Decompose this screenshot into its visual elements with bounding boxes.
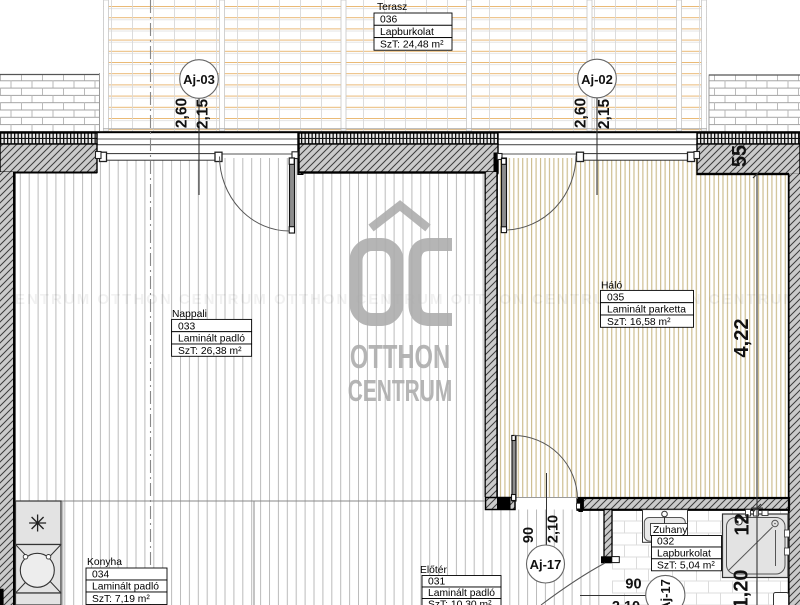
svg-text:032: 032 [657, 537, 674, 548]
svg-text:034: 034 [92, 570, 109, 581]
svg-text:2,60: 2,60 [573, 98, 590, 128]
svg-text:2,60: 2,60 [174, 98, 191, 128]
svg-text:Háló: Háló [601, 281, 622, 292]
svg-text:SzT: 26,38 m²: SzT: 26,38 m² [178, 346, 242, 357]
svg-text:Laminált padló: Laminált padló [178, 334, 245, 345]
svg-text:OTTHON: OTTHON [350, 339, 450, 376]
svg-text:SzT: 24,48 m²: SzT: 24,48 m² [380, 39, 444, 50]
svg-text:4,22: 4,22 [731, 319, 753, 358]
svg-text:2,15: 2,15 [596, 99, 613, 130]
svg-text:90: 90 [625, 577, 641, 593]
svg-text:035: 035 [607, 292, 624, 303]
svg-text:2,15: 2,15 [195, 99, 212, 130]
svg-text:Zuhany: Zuhany [653, 525, 688, 536]
svg-text:Konyha: Konyha [87, 557, 122, 568]
svg-text:Aj-02: Aj-02 [581, 72, 613, 87]
svg-text:036: 036 [380, 15, 397, 26]
svg-text:Aj-17: Aj-17 [530, 557, 562, 572]
svg-text:SzT: 16,58 m²: SzT: 16,58 m² [607, 317, 671, 328]
svg-text:Lapburkolat: Lapburkolat [380, 27, 434, 38]
svg-text:SzT: 7,19 m²: SzT: 7,19 m² [92, 594, 150, 605]
svg-text:1,20: 1,20 [731, 570, 753, 605]
svg-text:031: 031 [428, 577, 445, 588]
svg-text:033: 033 [178, 321, 195, 332]
svg-text:90: 90 [521, 527, 537, 543]
svg-text:Lapburkolat: Lapburkolat [657, 549, 711, 560]
svg-text:Aj-03: Aj-03 [183, 72, 215, 87]
svg-text:2,10: 2,10 [546, 515, 562, 543]
svg-text:Laminált parketta: Laminált parketta [607, 305, 686, 316]
svg-text:12: 12 [732, 513, 754, 535]
svg-text:SzT: 5,04 m²: SzT: 5,04 m² [657, 561, 715, 572]
svg-text:55: 55 [729, 145, 751, 167]
svg-text:CENTRUM: CENTRUM [348, 373, 453, 408]
svg-text:Laminált padló: Laminált padló [92, 582, 159, 593]
svg-text:Nappali: Nappali [172, 309, 207, 320]
svg-text:SzT: 10,30 m²: SzT: 10,30 m² [428, 600, 492, 605]
svg-text:Előtér: Előtér [420, 565, 447, 576]
svg-text:2,10: 2,10 [612, 599, 640, 605]
svg-text:Terasz: Terasz [377, 2, 407, 13]
svg-text:Laminált padló: Laminált padló [428, 588, 495, 599]
svg-text:Aj-17: Aj-17 [658, 579, 673, 605]
